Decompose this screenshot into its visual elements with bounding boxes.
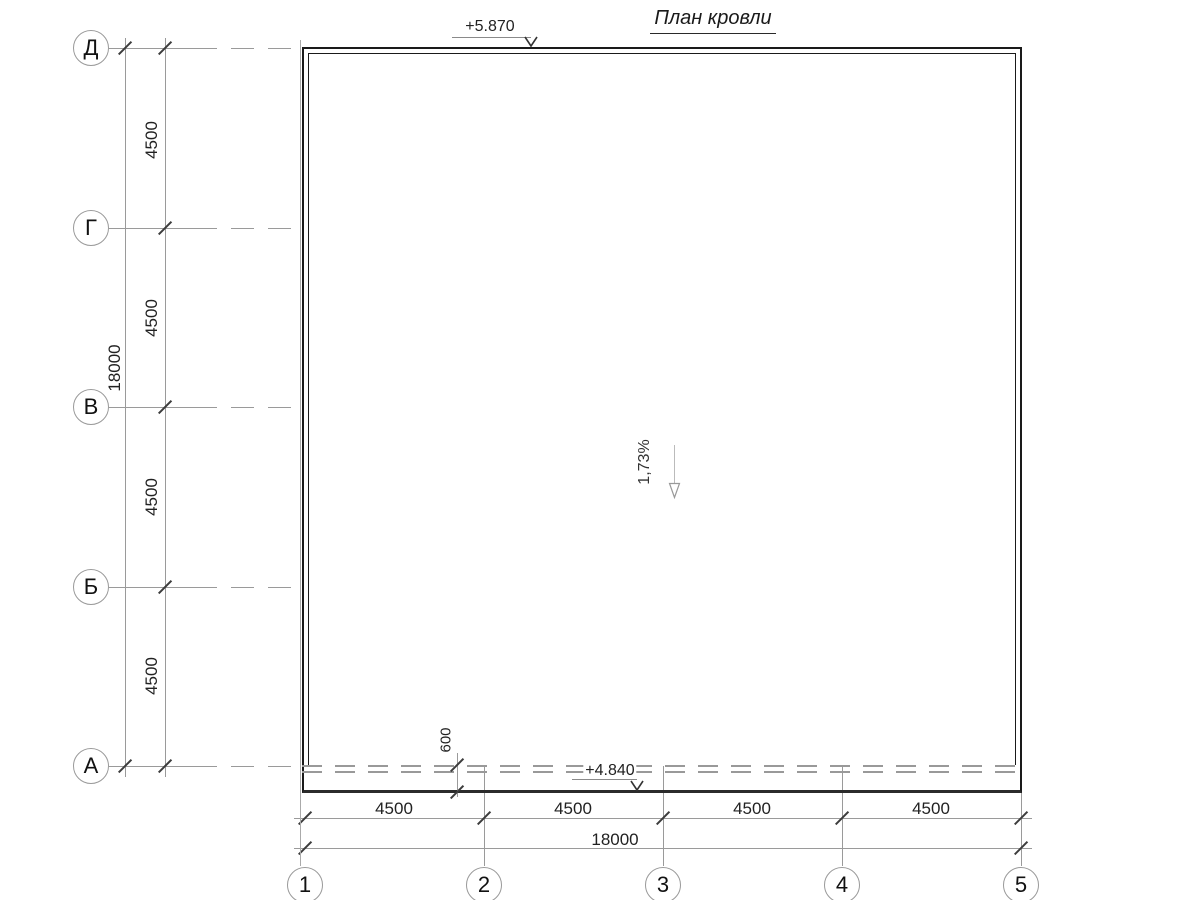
- axis-label-row-v: В: [84, 394, 99, 420]
- axis-line-row-v: [109, 407, 194, 408]
- axis-line-row-d-dash: [194, 48, 302, 49]
- axis-bubble-row-g: Г: [73, 210, 109, 246]
- leader-line-top: [452, 37, 531, 38]
- dim-label-bottom-segment-2: 4500: [554, 799, 592, 819]
- axis-label-col-1: 1: [299, 872, 311, 898]
- roof-outline-inner: [308, 53, 1016, 765]
- dim-label-left-segment-1: 4500: [142, 121, 162, 159]
- axis-bubble-row-v: В: [73, 389, 109, 425]
- axis-bubble-col-4: 4: [824, 867, 860, 900]
- roof-plan-drawing: План кровли 4500 4500 4500 4500 18000: [0, 0, 1200, 900]
- axis-bubble-row-a: А: [73, 748, 109, 784]
- dim-label-left-total: 18000: [105, 344, 125, 391]
- axis-label-col-5: 5: [1015, 872, 1027, 898]
- axis-label-col-3: 3: [657, 872, 669, 898]
- axis-bubble-col-2: 2: [466, 867, 502, 900]
- axis-bubble-col-5: 5: [1003, 867, 1039, 900]
- dim-label-bottom-total: 18000: [591, 830, 638, 850]
- hidden-edge-line-upper: [302, 765, 1022, 767]
- drawing-title: План кровли: [650, 7, 776, 34]
- extension-line-col-5: [1021, 793, 1022, 866]
- elevation-label-top: +5.870: [463, 18, 516, 36]
- axis-label-col-2: 2: [478, 872, 490, 898]
- slope-arrow-icon: [668, 482, 681, 499]
- axis-label-row-g: Г: [85, 215, 97, 241]
- axis-line-row-b: [109, 587, 194, 588]
- hidden-edge-line-lower: [302, 771, 1022, 773]
- leader-line-bottom: [572, 779, 637, 780]
- axis-bubble-row-d: Д: [73, 30, 109, 66]
- elevation-label-bottom: +4.840: [583, 762, 636, 780]
- dim-label-left-segment-4: 4500: [142, 657, 162, 695]
- down-arrow-icon: [629, 780, 645, 792]
- axis-line-row-a-dash: [194, 766, 302, 767]
- dim-label-left-segment-2: 4500: [142, 299, 162, 337]
- axis-line-row-g: [109, 228, 194, 229]
- axis-line-row-g-dash: [194, 228, 302, 229]
- axis-bubble-col-1: 1: [287, 867, 323, 900]
- axis-line-row-v-dash: [194, 407, 302, 408]
- axis-label-row-d: Д: [84, 35, 99, 61]
- dim-label-left-segment-3: 4500: [142, 478, 162, 516]
- extension-line-col-1: [300, 40, 301, 866]
- dimension-line-left-total: [125, 38, 126, 777]
- axis-bubble-row-b: Б: [73, 569, 109, 605]
- axis-bubble-col-3: 3: [645, 867, 681, 900]
- axis-line-row-b-dash: [194, 587, 302, 588]
- axis-label-col-4: 4: [836, 872, 848, 898]
- dim-label-overhang: 600: [438, 727, 455, 752]
- dim-label-bottom-segment-4: 4500: [912, 799, 950, 819]
- dim-label-bottom-segment-1: 4500: [375, 799, 413, 819]
- axis-label-row-b: Б: [84, 574, 98, 600]
- slope-label: 1,73%: [636, 439, 654, 484]
- dim-label-bottom-segment-3: 4500: [733, 799, 771, 819]
- down-arrow-icon: [523, 36, 539, 48]
- axis-label-row-a: А: [84, 753, 99, 779]
